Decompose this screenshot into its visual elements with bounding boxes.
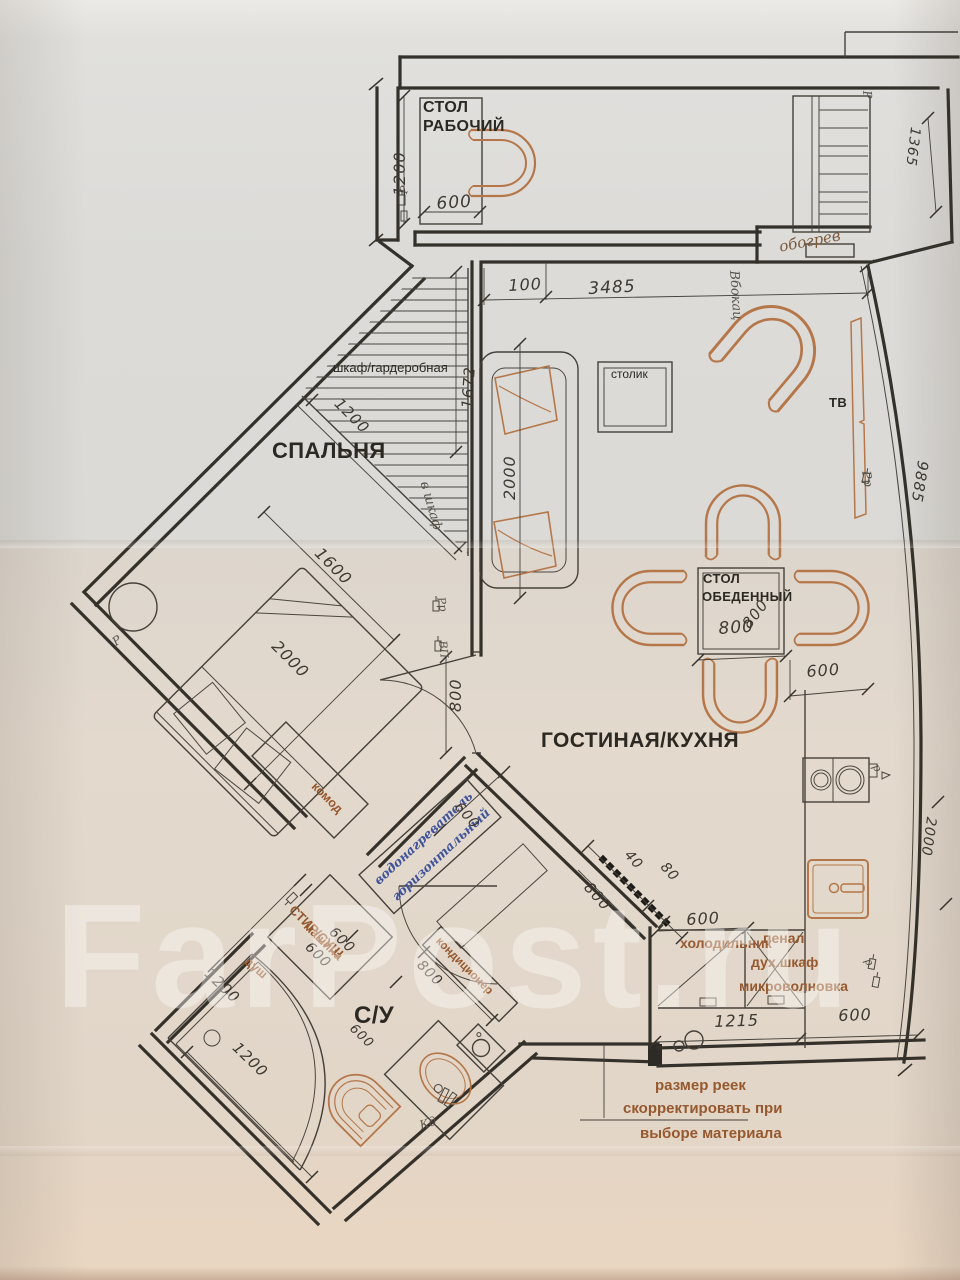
dim-1365: 1365	[903, 126, 922, 167]
dim-1200-shower2: 1200	[230, 1040, 271, 1080]
floor-plan-photo: СТОЛРАБОЧИЙ1200600Р1003485обогревВбокацР…	[0, 0, 960, 1280]
dim-800-ac: 800	[414, 958, 445, 989]
dim-800-door: 800	[448, 678, 464, 712]
hand-socket-cooktop: р	[870, 762, 883, 774]
note-line1: размер реек	[655, 1078, 746, 1093]
label-ac: кондиционер	[433, 936, 495, 998]
hand-socket-door2: ВП	[437, 640, 450, 659]
label-shower: душ	[242, 955, 270, 981]
photo-bottom-shadow	[0, 1266, 960, 1280]
dim-2000-sofa: 2000	[502, 455, 518, 500]
hand-kd: Кд	[418, 1115, 438, 1132]
label-penal: пенал	[763, 931, 804, 945]
dim-600-kitchen: 600	[838, 1007, 872, 1024]
dim-800-dining-bottom: 800	[718, 619, 755, 638]
dim-9885: 9885	[909, 460, 930, 504]
dim-100: 100	[508, 276, 542, 294]
hand-vshkaf: в шкаф	[418, 480, 444, 531]
dim-600-dining: 600	[806, 662, 841, 680]
label-dining-line1: СТОЛ	[703, 572, 740, 585]
dim-2000-right: 2000	[919, 816, 938, 857]
label-living-kitchen: ГОСТИНАЯ/КУХНЯ	[541, 730, 739, 751]
dim-1200-wardrobe: 1200	[331, 396, 371, 436]
dim-600-desk: 600	[436, 194, 473, 213]
dim-80-slats: 80	[658, 860, 682, 884]
hand-vbok: Вбокац	[727, 270, 743, 321]
hand-socket-wall: Рр	[860, 470, 875, 488]
label-komod: комод	[309, 780, 345, 816]
dim-1200-shower1: 1200	[202, 966, 243, 1006]
hand-socket-topright: Р	[861, 90, 874, 99]
dim-1672: 1672	[460, 366, 478, 409]
hand-socket-sink: р	[862, 956, 875, 968]
label-wardrobe: шкаф/гардеробная	[333, 361, 448, 374]
dim-1600-bed: 1600	[312, 545, 355, 588]
plan-labels-layer: СТОЛРАБОЧИЙ1200600Р1003485обогревВбокацР…	[0, 0, 960, 1280]
dim-1215: 1215	[714, 1012, 759, 1030]
label-dining-line2: ОБЕДЕННЫЙ	[702, 590, 793, 603]
label-fridge: холодильник	[680, 936, 772, 950]
label-desk-line2: РАБОЧИЙ	[423, 119, 505, 135]
dim-2000-bed: 2000	[269, 638, 312, 681]
hand-socket-door1: Рр	[435, 596, 449, 612]
label-desk-line1: СТОЛ	[423, 100, 468, 116]
label-bedroom: СПАЛЬНЯ	[272, 440, 386, 462]
dim-3485: 3485	[588, 279, 636, 298]
dim-40-slats: 40	[622, 848, 646, 872]
hand-socket-bedside: Р	[110, 633, 124, 647]
label-stolik: столик	[611, 368, 648, 380]
label-oven: дух.шкаф	[751, 955, 818, 969]
dim-600-fridge: 600	[686, 910, 720, 928]
hand-obogrev: обогрев	[778, 228, 842, 255]
note-line2: скорректировать при	[623, 1101, 782, 1116]
note-line3: выборе материала	[640, 1126, 782, 1141]
label-microwave: микроволновка	[739, 979, 848, 993]
dim-800-slats: 800	[581, 880, 613, 914]
label-tv: ТВ	[829, 396, 847, 409]
